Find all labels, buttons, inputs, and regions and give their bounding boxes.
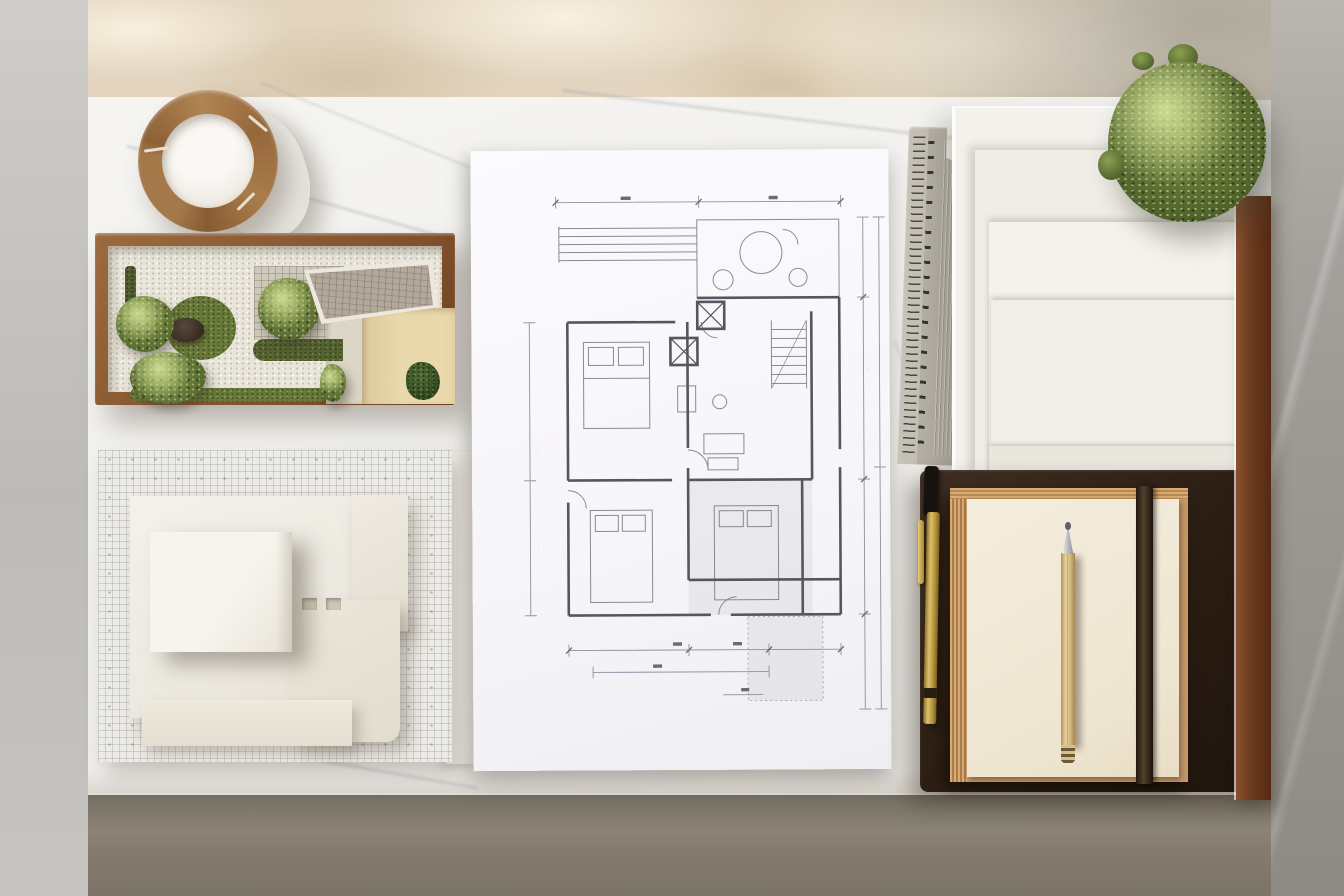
walnut-rail [1236, 196, 1271, 800]
gravel-bed [108, 246, 442, 392]
pen-clip [918, 520, 924, 584]
pencil-ferrule [1061, 745, 1075, 763]
patio-plant [406, 362, 440, 400]
wooden-ring-organizer [138, 90, 278, 232]
ring-hole [162, 114, 254, 208]
pen-band [924, 688, 937, 698]
floor-plan-svg [470, 149, 891, 771]
shrub [116, 296, 174, 352]
model-notch [302, 598, 317, 610]
blank-sheet [991, 300, 1237, 446]
topiary-tuft [1098, 150, 1124, 180]
model-cube [150, 532, 292, 652]
pen-cap [923, 466, 939, 516]
floor-plan-drawing [470, 149, 891, 771]
wooden-pencil [1061, 553, 1075, 745]
floor-bottom [88, 795, 1344, 896]
model-front-step [142, 700, 352, 746]
topiary-tuft [1132, 52, 1154, 70]
model-notch [326, 598, 341, 610]
elastic-band [1136, 486, 1153, 784]
garden-diorama [95, 233, 455, 405]
pencil-point [1065, 522, 1071, 530]
floor-left [0, 0, 88, 896]
desk-scene [0, 0, 1344, 896]
clipped-hedge [253, 339, 343, 361]
marble-wall-right [1271, 0, 1344, 896]
model-cube-shaded-face [276, 532, 292, 652]
page-edges-left [950, 488, 967, 782]
topiary-plant [1108, 62, 1266, 222]
